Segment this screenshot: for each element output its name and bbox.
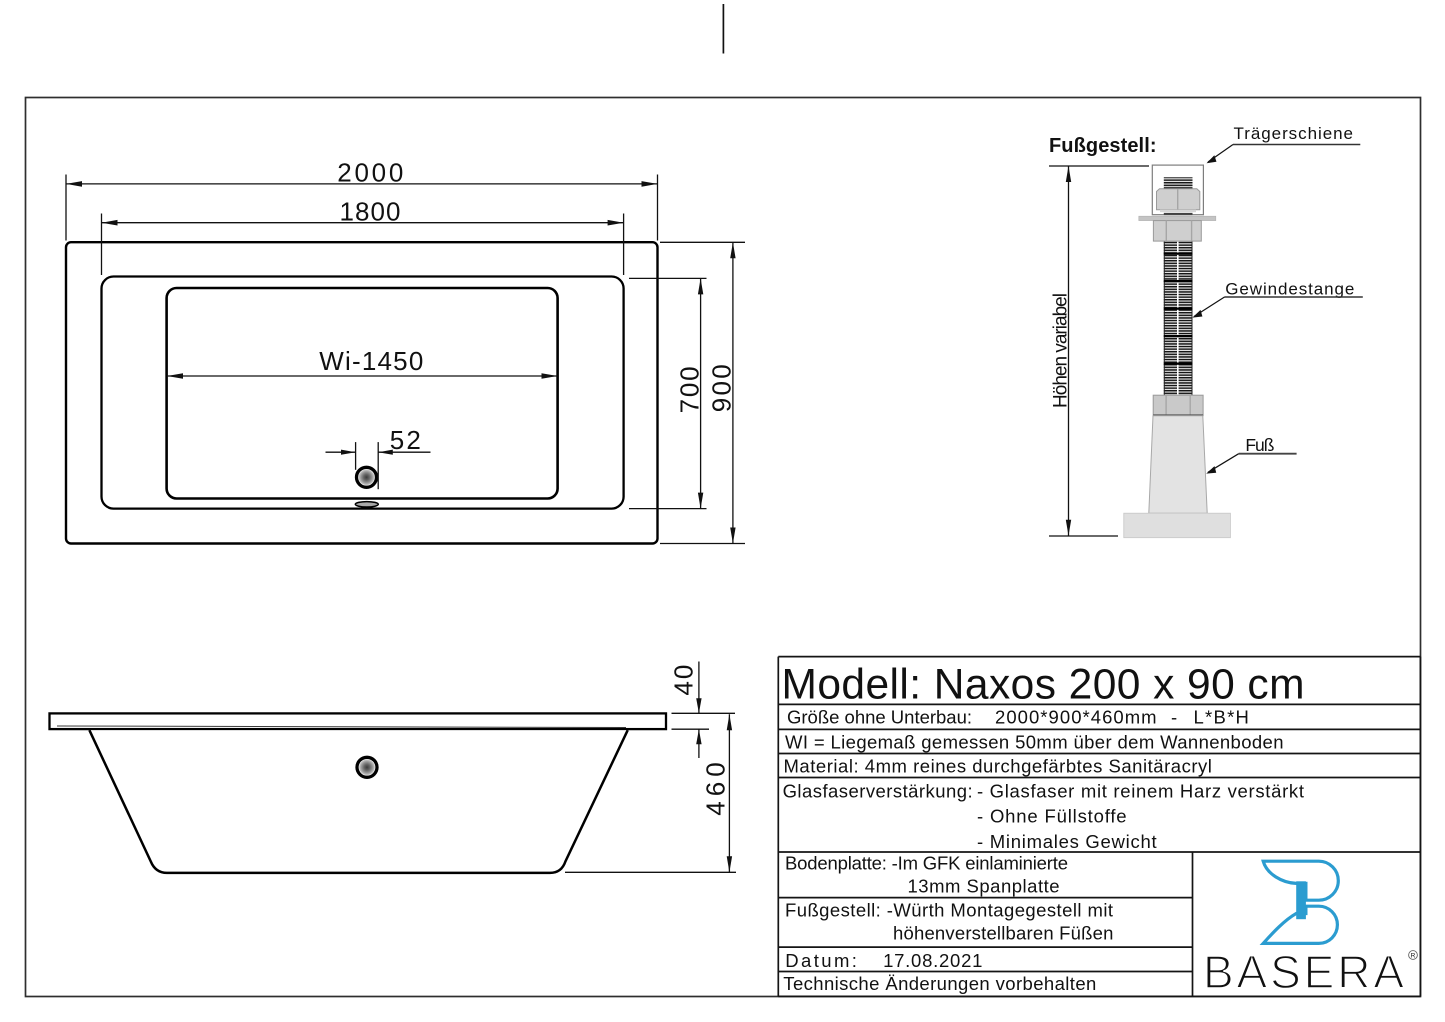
svg-text:- Glasfaser mit reinem Harz ve: - Glasfaser mit reinem Harz verstärkt [977,781,1304,802]
svg-text:R: R [1411,952,1416,959]
svg-text:Technische Änderungen vorbehal: Technische Änderungen vorbehalten [783,973,1096,994]
svg-text:Trägerschiene: Trägerschiene [1234,124,1354,143]
svg-text:2000*900*460mm: 2000*900*460mm [995,706,1157,727]
svg-text:17.08.2021: 17.08.2021 [883,950,982,971]
svg-text:Glasfaserverstärkung:: Glasfaserverstärkung: [783,781,973,802]
svg-text:700: 700 [675,366,705,413]
svg-text:2000: 2000 [337,158,403,188]
svg-text:13mm Spanplatte: 13mm Spanplatte [908,876,1060,897]
svg-text:höhenverstellbaren Füßen: höhenverstellbaren Füßen [893,923,1113,944]
svg-text:Größe ohne Unterbau:: Größe ohne Unterbau: [787,706,972,727]
svg-text:Material: 4mm reines durchgefä: Material: 4mm reines durchgefärbtes Sani… [784,755,1212,776]
svg-text:Fußgestell: -Würth Montagegest: Fußgestell: -Würth Montagegestell mit [785,899,1113,920]
svg-text:Fuß: Fuß [1245,435,1274,455]
svg-text:Modell: Naxos 200 x 90 cm: Modell: Naxos 200 x 90 cm [782,661,1305,708]
svg-text:Bodenplatte: -Im GFK einlamini: Bodenplatte: -Im GFK einlaminierte [785,853,1068,874]
svg-text:900: 900 [706,364,736,412]
svg-text:- Ohne Füllstoffe: - Ohne Füllstoffe [977,806,1127,827]
svg-text:BASERA: BASERA [1203,946,1404,998]
svg-text:Höhen variabel: Höhen variabel [1051,293,1072,408]
svg-text:L*B*H: L*B*H [1194,706,1249,727]
svg-text:Datum:: Datum: [785,950,857,971]
svg-text:-: - [1171,706,1177,727]
svg-text:Fußgestell:: Fußgestell: [1049,135,1157,157]
svg-text:Gewindestange: Gewindestange [1225,279,1354,298]
svg-text:40: 40 [669,665,699,696]
svg-text:1800: 1800 [340,196,401,226]
svg-text:- Minimales Gewicht: - Minimales Gewicht [977,831,1157,852]
svg-text:460: 460 [701,762,731,816]
svg-text:WI = Liegemaß gemessen 50mm üb: WI = Liegemaß gemessen 50mm über dem Wan… [785,731,1284,752]
